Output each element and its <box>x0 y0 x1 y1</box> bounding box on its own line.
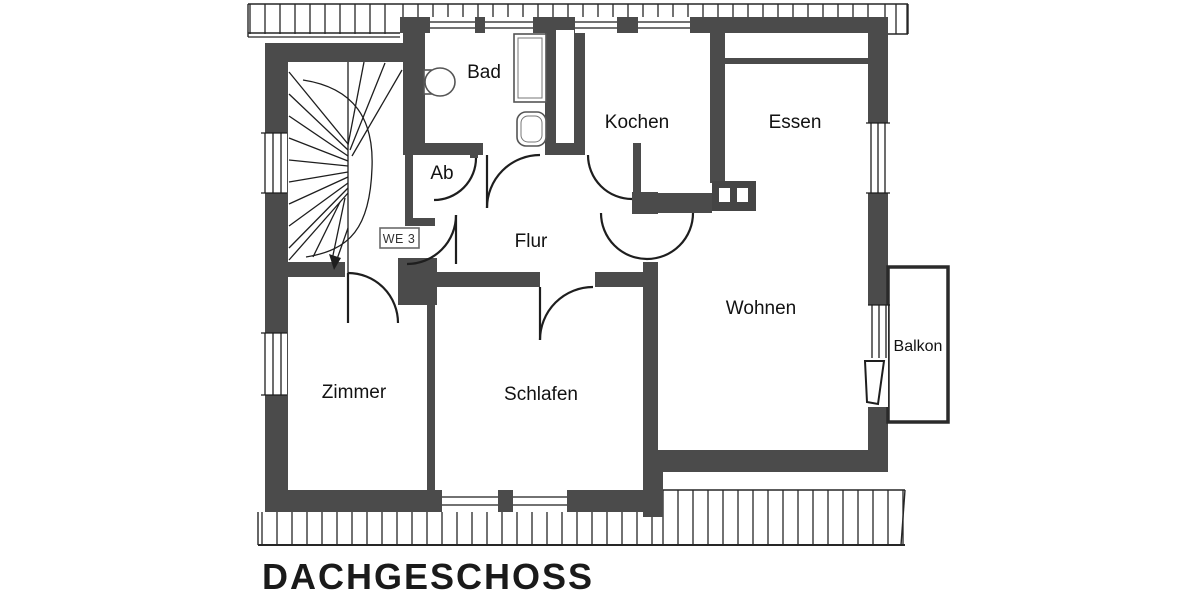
room-label-kochen: Kochen <box>605 112 669 133</box>
window-bad-1 <box>430 17 475 33</box>
room-label-flur: Flur <box>515 231 548 252</box>
door-kochen <box>588 155 632 199</box>
room-label-balkon: Balkon <box>894 338 943 355</box>
room-label-zimmer: Zimmer <box>322 382 387 403</box>
door-schlafen <box>540 287 593 340</box>
bathtub <box>514 34 546 102</box>
floorplan-canvas: Bad Kochen Essen Ab Flur Wohnen Zimmer S… <box>0 0 1200 600</box>
room-label-bad: Bad <box>467 62 501 83</box>
floorplan-page: Bad Kochen Essen Ab Flur Wohnen Zimmer S… <box>0 0 1200 600</box>
door-wohnen <box>601 213 693 259</box>
balcony-door <box>865 305 890 407</box>
room-label-essen: Essen <box>769 112 822 133</box>
door-bad <box>487 155 540 208</box>
floor-title: DACHGESCHOSS <box>262 556 594 597</box>
room-label-wohnen: Wohnen <box>726 298 796 319</box>
unit-tag-label: WE 3 <box>383 232 416 246</box>
window-kochen-1 <box>575 17 617 33</box>
room-label-schlafen: Schlafen <box>504 384 578 405</box>
room-label-ab: Ab <box>430 163 453 184</box>
window-schlafen-1 <box>442 490 498 512</box>
sink <box>517 112 546 146</box>
window-bad-2 <box>485 17 533 33</box>
door-zimmer <box>348 273 398 323</box>
window-wohnen-right <box>866 123 890 193</box>
window-stairwell <box>261 133 287 193</box>
unit-tag: WE 3 <box>380 228 419 248</box>
chimney <box>712 181 756 211</box>
window-kochen-2 <box>638 17 690 33</box>
window-schlafen-2 <box>513 490 567 512</box>
window-zimmer <box>261 333 287 395</box>
bath-fixtures <box>424 34 546 146</box>
toilet <box>424 68 455 96</box>
